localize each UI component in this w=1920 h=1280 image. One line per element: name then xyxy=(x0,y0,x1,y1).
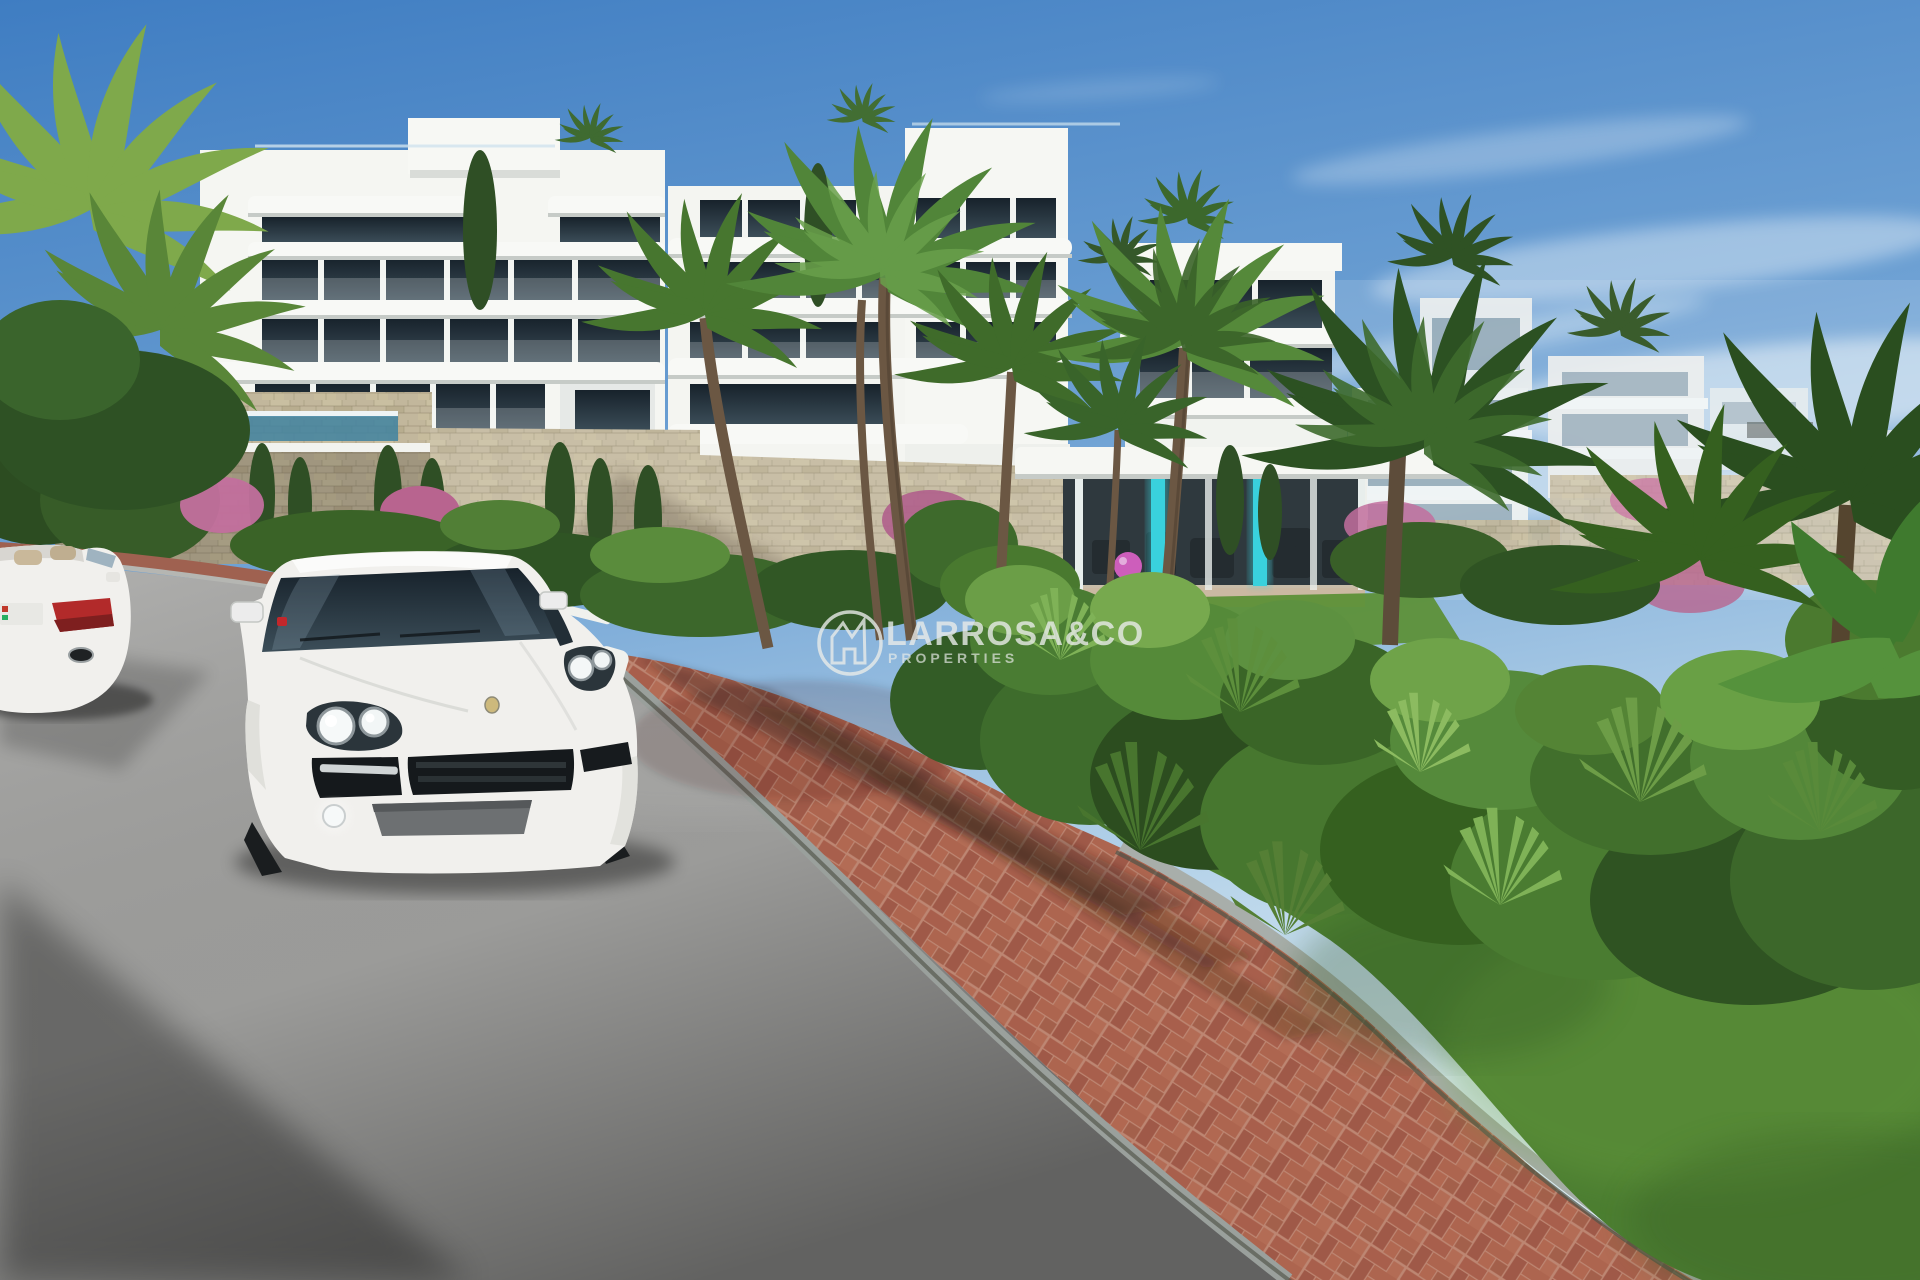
left-mirror xyxy=(231,602,263,622)
exhaust xyxy=(69,648,93,662)
mirror-signal xyxy=(277,617,287,626)
watermark-tagline: PROPERTIES xyxy=(888,650,1018,666)
watermark-brand: LARROSA&CO xyxy=(886,615,1145,653)
hood-badge xyxy=(485,697,499,713)
center-intake xyxy=(408,749,574,795)
property-render-image: LARROSA&CO PROPERTIES xyxy=(0,0,1920,1280)
pool-glass-edge xyxy=(244,411,398,441)
apartment-building-left xyxy=(200,118,665,440)
right-mirror xyxy=(540,592,567,609)
left-intake xyxy=(312,757,402,798)
